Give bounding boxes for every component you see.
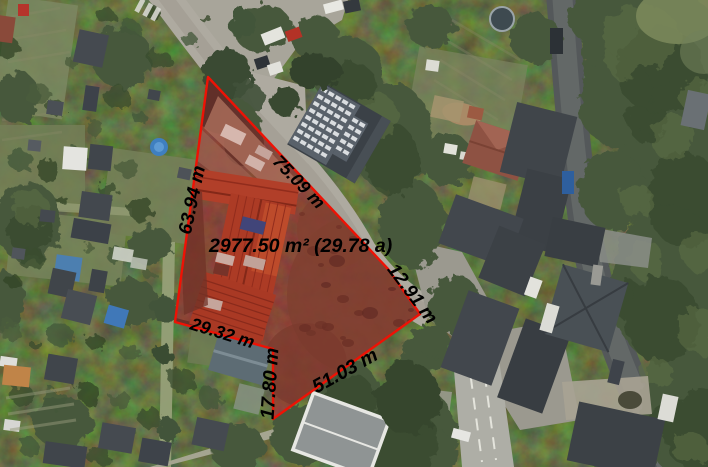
svg-text:2977.50 m² (29.78 a): 2977.50 m² (29.78 a) [208, 235, 392, 257]
